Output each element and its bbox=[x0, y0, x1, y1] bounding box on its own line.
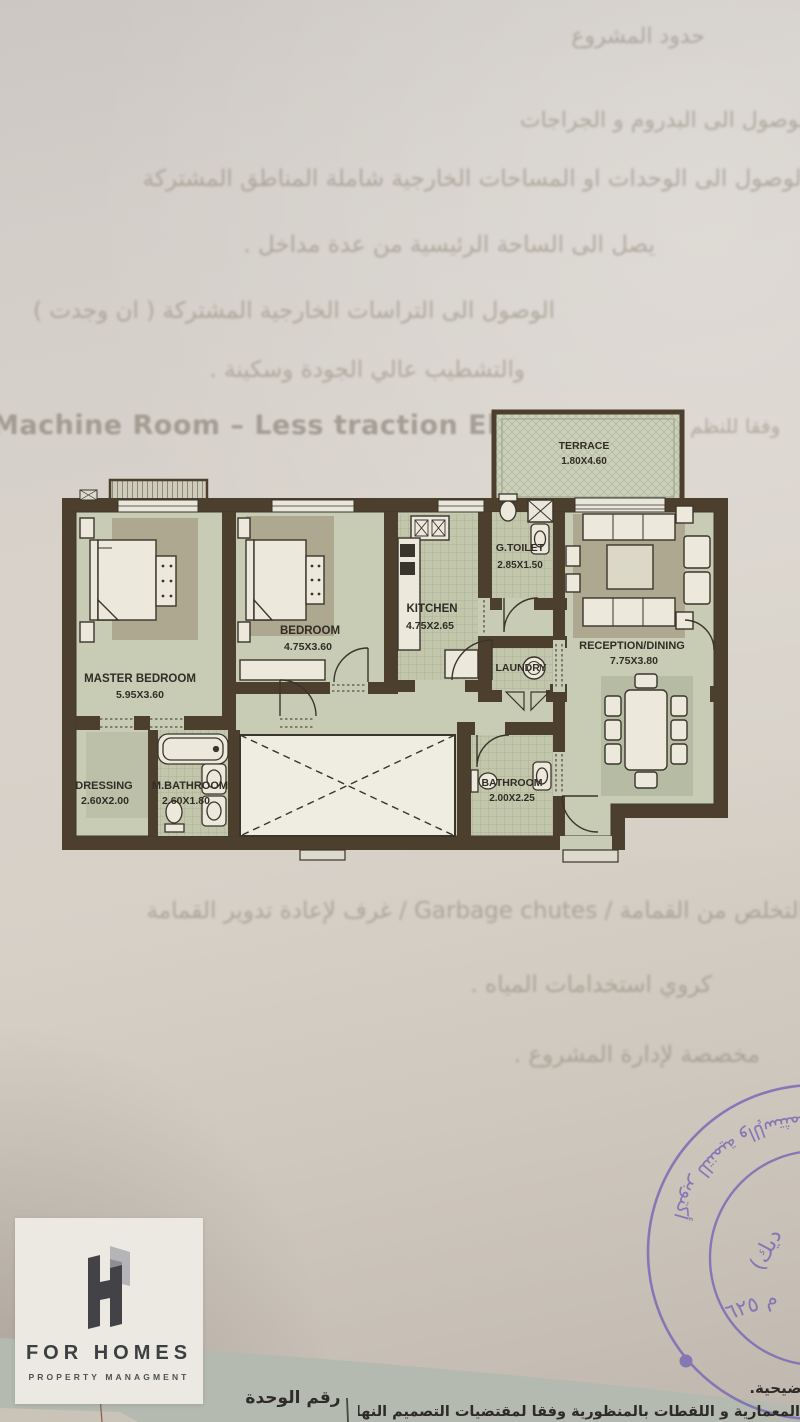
ac-unit bbox=[80, 490, 97, 500]
for-homes-logo-card: FOR HOMES PROPERTY MANAGMENT bbox=[15, 1218, 203, 1404]
room-label: G.TOILET bbox=[496, 542, 545, 554]
floor-plan: TERRACE 1.80X4.60 MASTER BEDROOM 5.95X3.… bbox=[62, 412, 728, 862]
stamp: أكتوبر للتنمية والإستثمار (ديك م ٦٢٥ bbox=[648, 1085, 800, 1419]
room-dims: 2.60X1.80 bbox=[162, 795, 210, 807]
room-label: BATHROOM bbox=[481, 777, 542, 789]
logo-subtitle: PROPERTY MANAGMENT bbox=[29, 1372, 190, 1382]
bottom-note-line: المعمارية و اللقطات بالمنظورية وفقا لمقت… bbox=[358, 1404, 800, 1420]
room-dims: 2.60X2.00 bbox=[81, 795, 129, 807]
room-label: BEDROOM bbox=[280, 625, 340, 637]
room-label: RECEPTION/DINING bbox=[579, 640, 685, 652]
room-dims: 5.95X3.60 bbox=[116, 689, 164, 701]
document-photo-page: حدود المشروع الوصول الى البدروم و الجراج… bbox=[0, 0, 800, 1422]
room-dims: 2.85X1.50 bbox=[497, 560, 543, 571]
floor-plan-artwork: TERRACE 1.80X4.60 MASTER BEDROOM 5.95X3.… bbox=[0, 0, 800, 1422]
room-dims: 4.75X3.60 bbox=[284, 641, 332, 653]
room-label: KITCHEN bbox=[406, 603, 457, 615]
room-label: LAUNDRY bbox=[496, 662, 547, 674]
stamp-inner-text-1: (ديك bbox=[745, 1225, 787, 1275]
corridor-void bbox=[240, 735, 455, 836]
room-label: MASTER BEDROOM bbox=[84, 673, 196, 685]
stamp-ring-text: أكتوبر للتنمية والإستثمار bbox=[669, 1111, 800, 1222]
building-h-icon bbox=[86, 1244, 132, 1330]
room-dims: 1.80X4.60 bbox=[561, 456, 607, 467]
bottom-note-right: التوضيحية. bbox=[698, 1379, 800, 1397]
room-dims: 2.00X2.25 bbox=[489, 793, 535, 804]
room-label: DRESSING bbox=[75, 780, 132, 792]
room-label: TERRACE bbox=[559, 440, 610, 452]
entry-sills bbox=[300, 850, 618, 862]
stamp-dot bbox=[680, 1355, 693, 1368]
room-dims: 7.75X3.80 bbox=[610, 655, 658, 667]
room-dims: 4.75X2.65 bbox=[406, 620, 454, 632]
shaft bbox=[528, 500, 553, 522]
logo-title: FOR HOMES bbox=[26, 1342, 192, 1365]
svg-text:أكتوبر للتنمية والإستثمار: أكتوبر للتنمية والإستثمار bbox=[669, 1111, 800, 1222]
room-label: M.BATHROOM bbox=[152, 780, 228, 792]
stamp-inner-text-2: م ٦٢٥ bbox=[722, 1285, 780, 1324]
unit-number-label: رقم الوحدة bbox=[238, 1388, 348, 1408]
